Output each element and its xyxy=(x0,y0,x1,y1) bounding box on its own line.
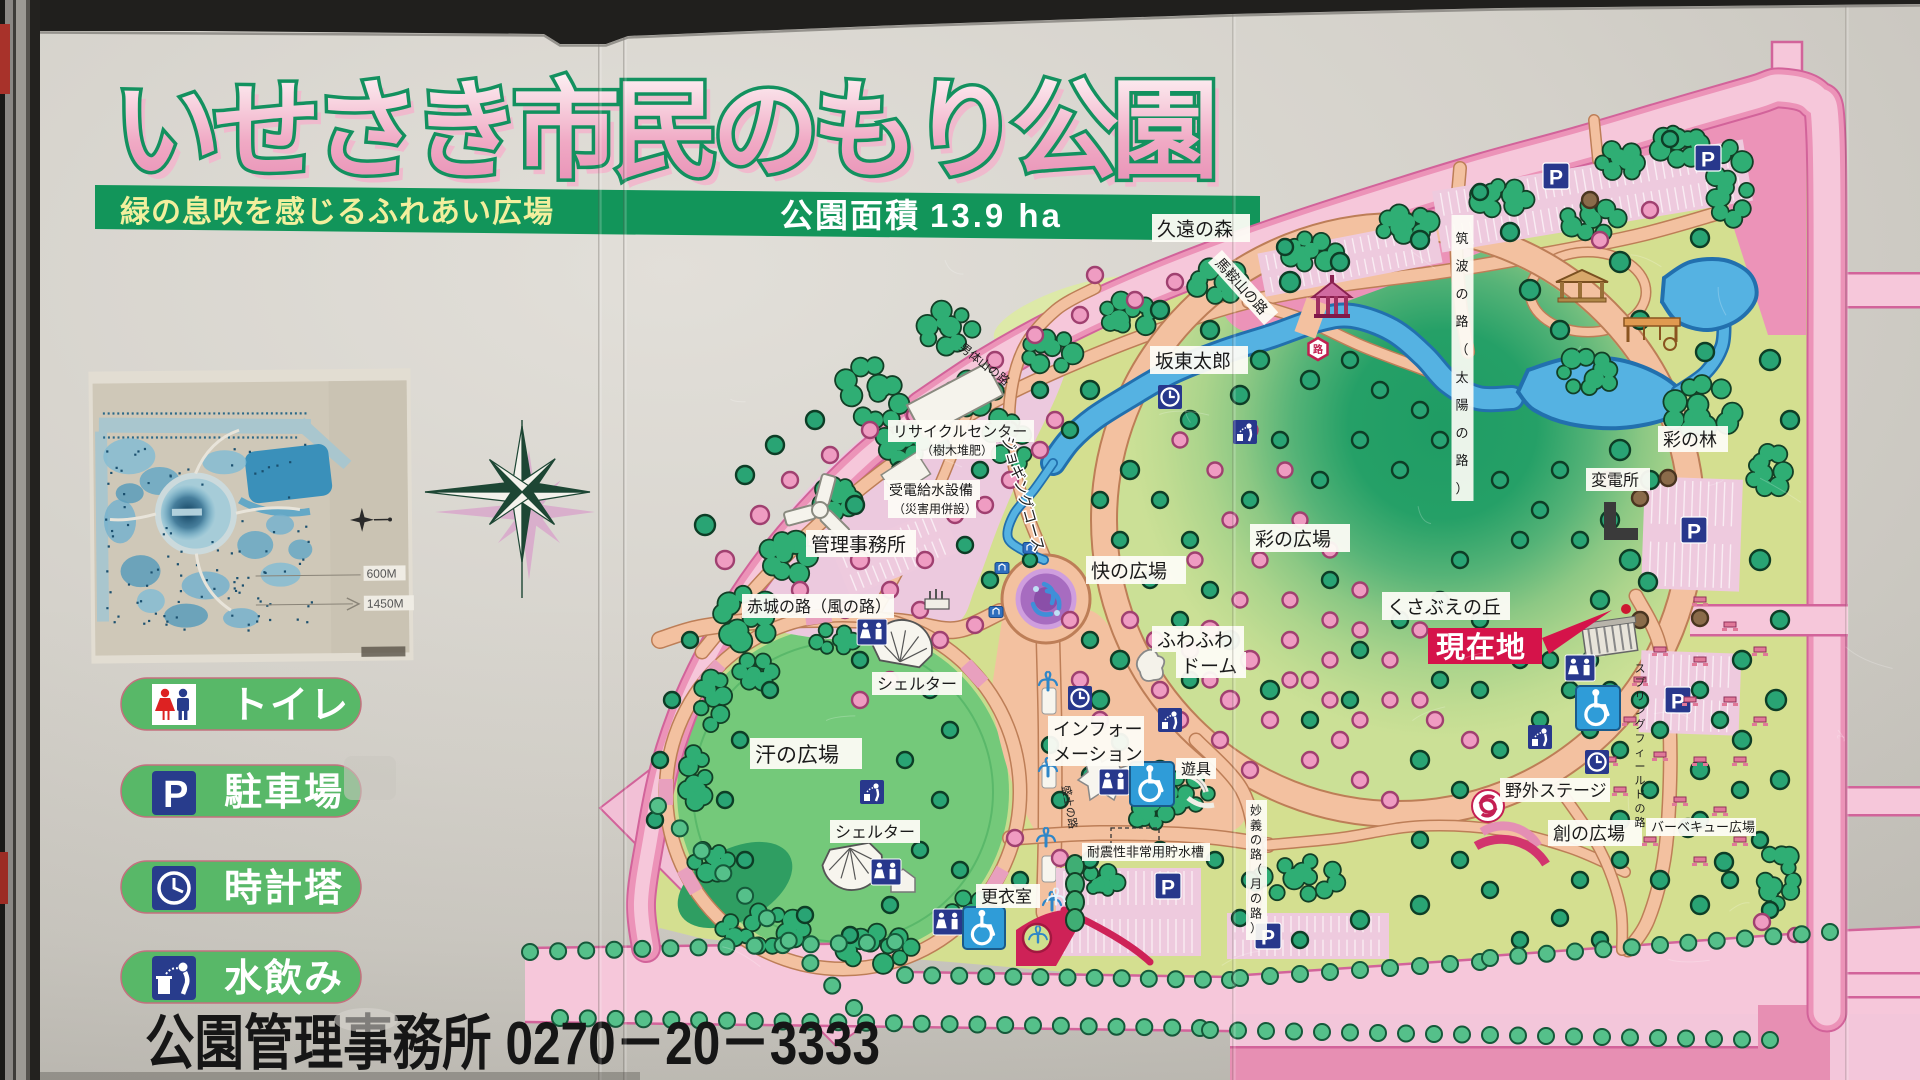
svg-text:久遠の森: 久遠の森 xyxy=(1157,219,1233,241)
svg-text:管理事務所: 管理事務所 xyxy=(811,534,906,556)
svg-text:汗の広場: 汗の広場 xyxy=(755,744,839,767)
svg-text:P: P xyxy=(1161,877,1175,900)
svg-text:赤城の路（風の路）: 赤城の路（風の路） xyxy=(747,598,891,616)
svg-text:いせさき市民のもり公園: いせさき市民のもり公園 xyxy=(113,70,1212,191)
svg-text:更衣室: 更衣室 xyxy=(981,888,1032,907)
svg-text:現在地: 現在地 xyxy=(1436,631,1526,664)
svg-text:トイレ: トイレ xyxy=(230,685,350,727)
svg-text:創の広場: 創の広場 xyxy=(1553,824,1625,844)
svg-text:ドーム: ドーム xyxy=(1181,657,1237,678)
svg-text:P: P xyxy=(163,774,188,816)
svg-text:坂東太郎: 坂東太郎 xyxy=(1155,351,1231,373)
svg-text:路: 路 xyxy=(1313,343,1324,356)
svg-text:13.9 ha: 13.9 ha xyxy=(930,197,1063,234)
svg-text:P: P xyxy=(1549,167,1563,190)
svg-text:受電給水設備: 受電給水設備 xyxy=(889,482,973,498)
svg-text:P: P xyxy=(1687,521,1701,544)
svg-text:駐車場: 駐車場 xyxy=(224,772,344,814)
svg-text:耐震性非常用貯水槽: 耐震性非常用貯水槽 xyxy=(1087,845,1204,860)
svg-text:メーション: メーション xyxy=(1053,745,1143,765)
svg-text:P: P xyxy=(1671,691,1685,714)
svg-text:妙義の路（月の路）: 妙義の路（月の路） xyxy=(1250,804,1262,935)
svg-text:彩の広場: 彩の広場 xyxy=(1255,529,1331,551)
svg-text:遊具: 遊具 xyxy=(1181,761,1211,778)
svg-text:水飲み: 水飲み xyxy=(224,958,344,1000)
svg-text:シェルター: シェルター xyxy=(835,824,915,842)
svg-text:公園管理事務所 0270－20－3333: 公園管理事務所 0270－20－3333 xyxy=(145,1010,880,1077)
svg-text:P: P xyxy=(1701,149,1715,172)
svg-text:くさぶえの丘: くさぶえの丘 xyxy=(1387,597,1501,619)
svg-text:バーベキュー広場: バーベキュー広場 xyxy=(1651,820,1755,835)
svg-text:600M: 600M xyxy=(366,566,396,580)
svg-text:インフォー: インフォー xyxy=(1053,720,1142,740)
svg-text:快の広場: 快の広場 xyxy=(1091,561,1167,583)
svg-text:変電所: 変電所 xyxy=(1591,472,1639,490)
svg-text:（災害用併設）: （災害用併設） xyxy=(893,501,977,516)
svg-text:ふわふわ: ふわふわ xyxy=(1157,631,1233,652)
svg-text:公園面積: 公園面積 xyxy=(780,197,920,234)
svg-text:時計塔: 時計塔 xyxy=(224,868,344,910)
svg-text:緑の息吹を感じるふれあい広場: 緑の息吹を感じるふれあい広場 xyxy=(120,195,554,229)
svg-text:野外ステージ: 野外ステージ xyxy=(1505,782,1607,801)
svg-text:1450M: 1450M xyxy=(367,596,404,610)
svg-text:シェルター: シェルター xyxy=(877,676,957,694)
svg-text:彩の林: 彩の林 xyxy=(1663,430,1717,450)
